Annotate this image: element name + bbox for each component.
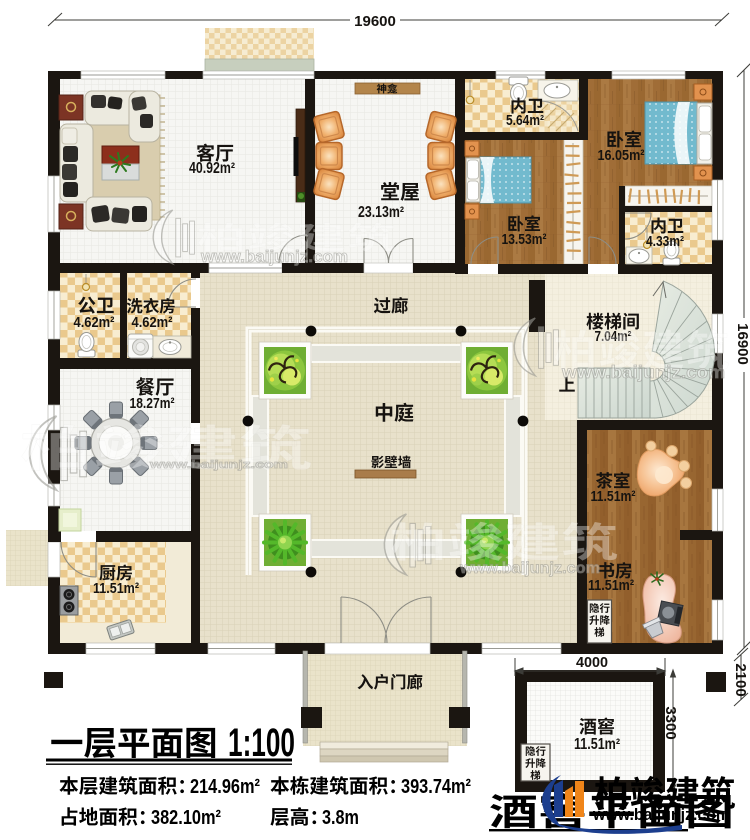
- svg-text:4.62m²: 4.62m²: [74, 314, 115, 331]
- svg-text:4.33m²: 4.33m²: [646, 234, 684, 250]
- svg-text:18.27m²: 18.27m²: [130, 395, 175, 412]
- svg-text:19600: 19600: [354, 13, 396, 30]
- svg-text:4000: 4000: [576, 655, 608, 671]
- svg-text:40.92m²: 40.92m²: [189, 160, 235, 177]
- svg-text:11.51m²: 11.51m²: [93, 580, 139, 597]
- svg-text:4.62m²: 4.62m²: [132, 314, 173, 331]
- svg-text:www.baijunjz.com: www.baijunjz.com: [149, 459, 289, 471]
- svg-text:16900: 16900: [734, 323, 750, 365]
- svg-text:1:100: 1:100: [228, 721, 295, 765]
- svg-text:13.53m²: 13.53m²: [502, 231, 547, 248]
- svg-text:www.baijunjz.com: www.baijunjz.com: [459, 560, 600, 577]
- svg-text:www.baijunjz.com: www.baijunjz.com: [561, 362, 725, 382]
- svg-text:3300: 3300: [662, 706, 679, 739]
- svg-text:www.baijunjz.com: www.baijunjz.com: [200, 247, 348, 266]
- svg-text:www.baijunjz.com: www.baijunjz.com: [592, 806, 730, 824]
- svg-text:214.96m²: 214.96m²: [190, 775, 260, 798]
- svg-text:11.51m²: 11.51m²: [574, 736, 620, 753]
- svg-text:11.51m²: 11.51m²: [588, 577, 634, 594]
- svg-text:5.64m²: 5.64m²: [506, 113, 544, 129]
- svg-text:2100: 2100: [732, 663, 749, 696]
- svg-text:3.8m: 3.8m: [322, 806, 359, 829]
- svg-text:16.05m²: 16.05m²: [598, 147, 645, 164]
- svg-text:393.74m²: 393.74m²: [401, 775, 471, 798]
- svg-text:382.10m²: 382.10m²: [151, 806, 221, 829]
- svg-text:11.51m²: 11.51m²: [591, 488, 636, 505]
- svg-text:23.13m²: 23.13m²: [358, 204, 404, 221]
